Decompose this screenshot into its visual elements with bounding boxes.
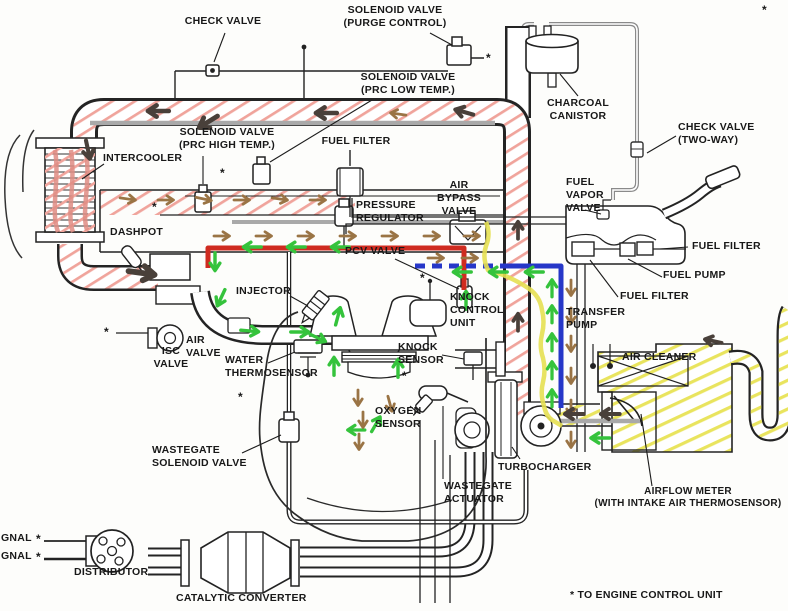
label-intercooler: INTERCOOLER [103, 152, 183, 165]
footnote-asterisk: * [220, 166, 225, 180]
label-fuel-filter-right: FUEL FILTER [692, 240, 772, 253]
check-valve-top-glyph [206, 65, 219, 76]
label-dashpot: DASHPOT [110, 226, 170, 239]
label-fuel-vapor-valve: FUEL VAPOR VALVE [566, 176, 626, 214]
exhaust-pipes [148, 452, 488, 572]
footnote-asterisk: * [762, 3, 767, 17]
left-bodywork-lines [5, 130, 34, 258]
catalytic-converter-glyph [181, 532, 299, 593]
label-pcv-valve: PCV VALVE [345, 245, 407, 258]
label-wastegate-actuator: WASTEGATE ACTUATOR [444, 480, 534, 506]
footnote-asterisk: * [36, 550, 41, 564]
vacuum-hose-diagram: CHECK VALVE SOLENOID VALVE (PURGE CONTRO… [0, 0, 788, 611]
label-charcoal-canistor: CHARCOAL CANISTOR [530, 97, 626, 123]
label-check-valve-two-way: CHECK VALVE (TWO-WAY) [678, 121, 783, 147]
label-signal-2: GNAL [1, 550, 41, 563]
intake-duct-glyph [730, 310, 788, 434]
check-valve-two-way-glyph [631, 142, 643, 157]
label-injector: INJECTOR [236, 285, 294, 298]
footnote-asterisk: * [104, 325, 109, 339]
charcoal-canister-glyph [526, 26, 578, 87]
label-solenoid-valve-pr-low: SOLENOID VALVE (PRC LOW TEMP.) [338, 71, 478, 97]
label-wastegate-solenoid-valve: WASTEGATE SOLENOID VALVE [152, 444, 262, 470]
label-turbocharger: TURBOCHARGER [498, 461, 608, 474]
label-fuel-filter-top: FUEL FILTER [316, 135, 396, 148]
label-transfer-pump: TRANSFER PUMP [566, 306, 636, 332]
label-check-valve-top: CHECK VALVE [163, 15, 283, 28]
label-water-thermosensor: WATER THERMOSENSOR [225, 354, 317, 380]
footnote-asterisk: * [238, 390, 243, 404]
label-distributor: DISTRIBUTOR [74, 566, 164, 579]
label-knock-sensor: KNOCK SENSOR [398, 341, 458, 367]
label-solenoid-valve-prc-high: SOLENOID VALVE (PRC HIGH TEMP.) [158, 126, 296, 152]
label-airflow-meter: AIRFLOW METER (WITH INTAKE AIR THERMOSEN… [588, 486, 788, 510]
label-air-cleaner: AIR CLEANER [622, 351, 706, 364]
label-fuel-filter-lower: FUEL FILTER [620, 290, 700, 303]
purge-solenoid-glyph [447, 37, 471, 65]
footnote-asterisk: * [36, 532, 41, 546]
footnote-asterisk: * [486, 51, 491, 65]
label-fuel-pump: FUEL PUMP [663, 269, 735, 282]
footnote-asterisk: * [152, 200, 157, 214]
label-pressure-regulator: PRESSURE REGULATOR [356, 199, 456, 225]
label-signal-1: GNAL [1, 532, 41, 545]
footnote-to-engine-control-unit: * TO ENGINE CONTROL UNIT [570, 589, 750, 602]
label-oxygen-sensor: OXYGEN SENSOR [375, 405, 435, 431]
footnote-asterisk: * [402, 369, 407, 383]
label-catalytic-converter: CATALYTIC CONVERTER [176, 592, 336, 605]
label-solenoid-valve-purge: SOLENOID VALVE (PURGE CONTROL) [325, 4, 465, 30]
turbocharger-glyph [419, 372, 561, 458]
footnote-asterisk: * [420, 271, 425, 285]
label-knock-control-unit: KNOCK CONTROL UNIT [450, 291, 512, 329]
pcv-red-line [208, 248, 464, 290]
